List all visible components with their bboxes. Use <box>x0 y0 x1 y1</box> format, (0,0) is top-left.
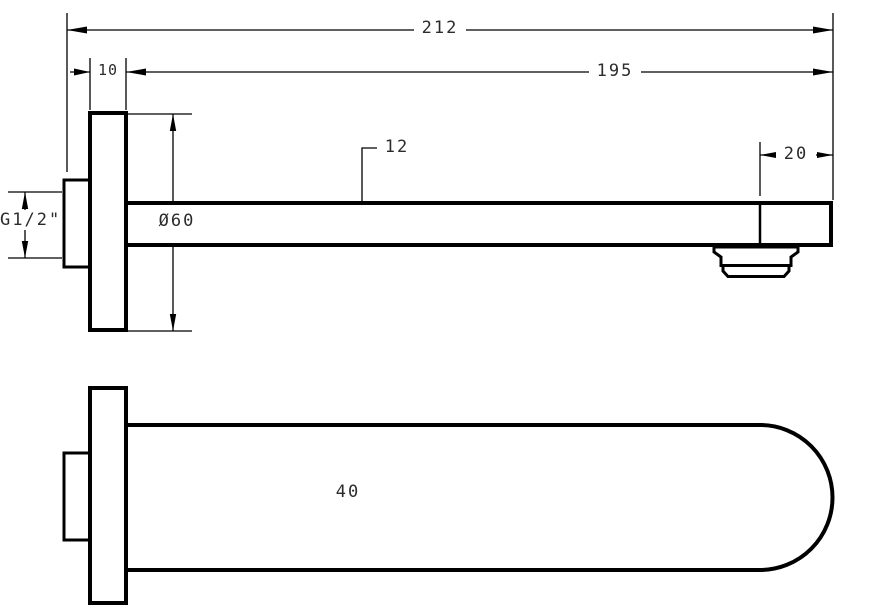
wall-flange-plan <box>90 388 126 603</box>
dim-tip-section-length: 20 <box>776 144 816 164</box>
technical-drawing-canvas: 212 195 10 12 20 Ø60 G1/2" 40 <box>0 0 873 611</box>
arrow-flange-diameter-up <box>170 114 176 131</box>
arrow-spout-length-right <box>813 69 833 76</box>
arrow-overall-right <box>813 27 833 34</box>
thread-connector-plan <box>64 453 90 540</box>
arrow-flange-thickness <box>74 69 90 76</box>
spout-body-plan <box>126 425 833 570</box>
drawing-linework <box>0 0 873 611</box>
spout-body-side <box>126 203 831 245</box>
arrow-thread-up <box>22 192 28 209</box>
dim-spout-width: 40 <box>328 482 368 502</box>
aerator-housing <box>714 247 798 266</box>
thread-connector-side <box>64 180 90 267</box>
plan-view <box>64 388 833 603</box>
arrow-overall-left <box>67 27 87 34</box>
arrow-tip-section-left <box>760 152 776 158</box>
dim-flange-thickness: 10 <box>96 60 120 78</box>
dim-flange-diameter: Ø60 <box>153 211 201 231</box>
arrow-thread-down <box>22 241 28 258</box>
dim-overall-length: 212 <box>414 18 466 38</box>
dim-spout-length: 195 <box>589 61 641 81</box>
aerator-ring <box>723 266 789 277</box>
dim-spout-height: 12 <box>377 137 417 157</box>
arrow-tip-section-right <box>817 152 833 158</box>
wall-flange-side <box>90 113 126 330</box>
arrow-spout-length-left <box>126 69 146 76</box>
dim-thread-size: G1/2" <box>0 210 52 230</box>
arrow-flange-diameter-down <box>170 314 176 331</box>
dimension-lines-side-view <box>8 13 833 331</box>
